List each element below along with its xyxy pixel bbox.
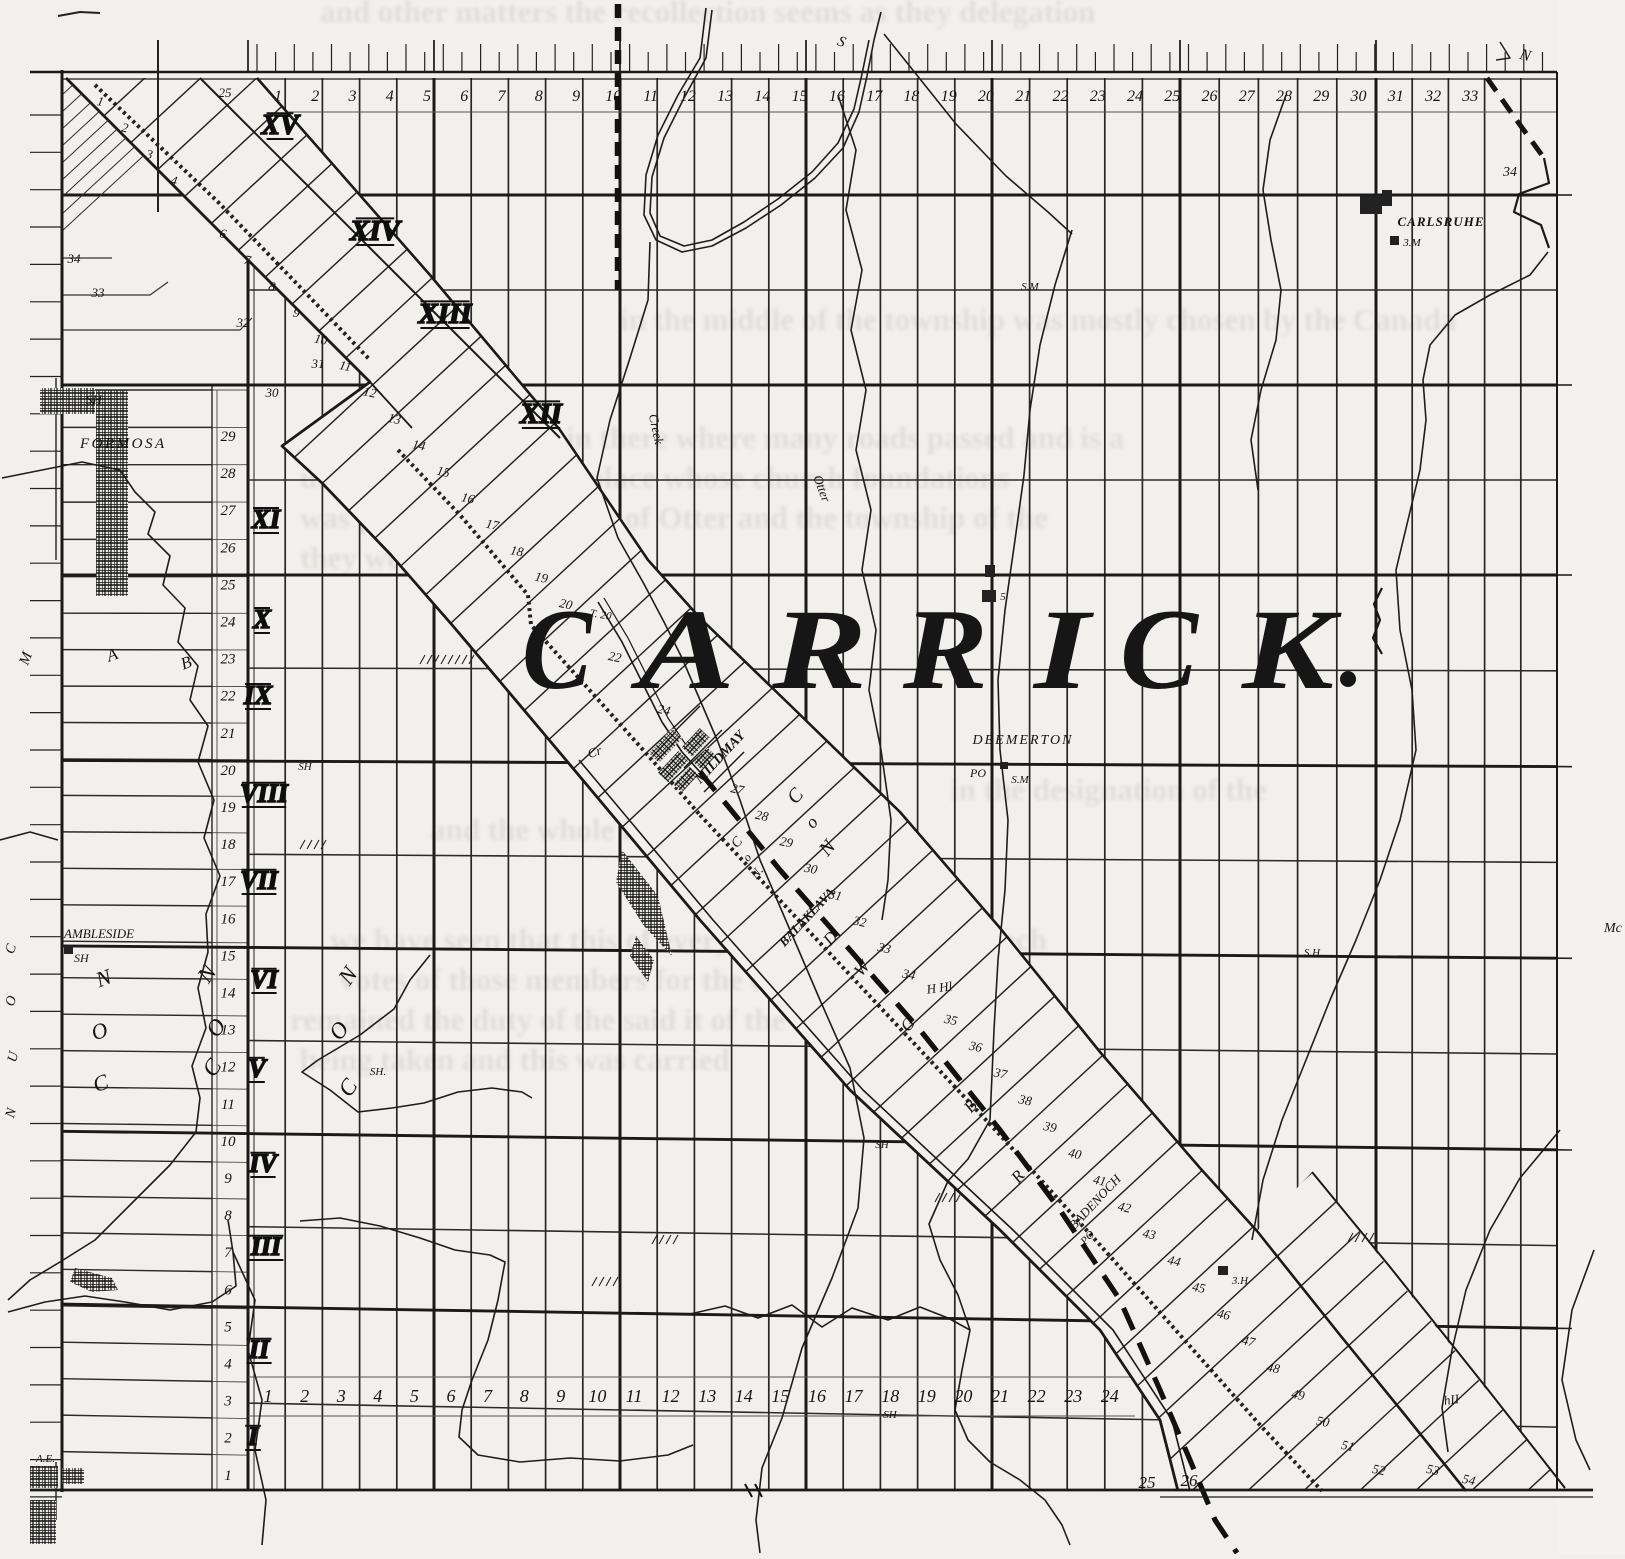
svg-text:7: 7: [483, 1386, 493, 1406]
svg-text:22: 22: [1028, 1386, 1046, 1406]
svg-text:34: 34: [67, 251, 82, 266]
svg-text:14: 14: [221, 986, 237, 1002]
svg-text:20: 20: [978, 88, 994, 105]
svg-text:14: 14: [754, 88, 770, 105]
svg-text:XIII: XIII: [417, 298, 473, 330]
svg-text:13: 13: [717, 88, 733, 105]
svg-text:and other matters the recollec: and other matters the recollection seems…: [320, 0, 1095, 29]
svg-text:2: 2: [300, 1386, 309, 1406]
svg-text:S.M: S.M: [1011, 774, 1029, 786]
svg-text:17: 17: [866, 88, 883, 105]
svg-text:32: 32: [236, 315, 251, 330]
svg-text:3: 3: [336, 1386, 346, 1406]
svg-text:25: 25: [1164, 88, 1180, 105]
svg-text:3: 3: [348, 88, 357, 105]
svg-text:A.E.: A.E.: [35, 1453, 55, 1465]
svg-text:8: 8: [520, 1386, 529, 1406]
svg-text:16: 16: [221, 911, 237, 927]
svg-text:10: 10: [588, 1386, 606, 1406]
svg-text:31: 31: [1387, 88, 1404, 105]
svg-text:22: 22: [1053, 88, 1069, 105]
svg-text:25: 25: [221, 577, 237, 593]
svg-text:C: C: [1120, 586, 1199, 713]
svg-text:6: 6: [447, 1386, 456, 1406]
svg-text:CARLSRUHE: CARLSRUHE: [1397, 214, 1484, 229]
svg-text:19: 19: [941, 88, 957, 105]
svg-text:19: 19: [918, 1386, 936, 1406]
svg-text:21: 21: [1015, 88, 1031, 105]
svg-text:30: 30: [1350, 88, 1367, 105]
svg-text:29: 29: [1313, 88, 1329, 105]
svg-text:AMBLESIDE: AMBLESIDE: [63, 926, 134, 941]
svg-text:20: 20: [221, 763, 237, 779]
svg-text:11: 11: [221, 1097, 235, 1113]
svg-text:C: C: [522, 586, 593, 713]
svg-text:SH: SH: [875, 1139, 890, 1151]
svg-text:XIV: XIV: [349, 215, 403, 247]
svg-text:4: 4: [386, 88, 394, 105]
svg-text:9: 9: [572, 88, 580, 105]
svg-text:FORMOSA: FORMOSA: [79, 436, 167, 452]
svg-text:12: 12: [662, 1386, 680, 1406]
svg-text:A: A: [630, 586, 735, 713]
svg-text:9: 9: [556, 1386, 565, 1406]
svg-text:PO: PO: [969, 766, 986, 780]
svg-text:4: 4: [224, 1357, 232, 1373]
svg-text:29: 29: [221, 429, 237, 445]
svg-text:1: 1: [274, 88, 282, 105]
svg-text:30: 30: [265, 385, 280, 400]
svg-text:24: 24: [1127, 88, 1143, 105]
svg-text:3: 3: [223, 1394, 232, 1410]
svg-text:22: 22: [221, 689, 237, 705]
svg-text:4: 4: [373, 1386, 382, 1406]
svg-text:18: 18: [903, 88, 919, 105]
svg-text:5: 5: [224, 1319, 232, 1335]
svg-text:XV: XV: [260, 110, 301, 141]
svg-text:33: 33: [91, 285, 106, 300]
svg-text:S.M: S.M: [1021, 281, 1039, 293]
svg-text:1: 1: [264, 1386, 273, 1406]
svg-text:15: 15: [221, 948, 237, 964]
svg-text:Mc: Mc: [1603, 921, 1623, 936]
svg-text:K: K: [1241, 586, 1343, 713]
svg-text:23: 23: [1090, 88, 1106, 105]
svg-text:31: 31: [311, 356, 325, 371]
svg-text:SH: SH: [74, 951, 90, 965]
svg-text:3.H: 3.H: [1231, 1275, 1249, 1287]
svg-text:R: R: [771, 586, 867, 713]
svg-text:15: 15: [792, 88, 808, 105]
svg-text:18: 18: [881, 1386, 899, 1406]
svg-text:11: 11: [643, 88, 658, 105]
svg-text:R: R: [902, 586, 988, 713]
svg-text:17: 17: [845, 1386, 864, 1406]
svg-text:16: 16: [808, 1386, 826, 1406]
svg-text:2: 2: [311, 88, 319, 105]
svg-text:7: 7: [498, 88, 507, 105]
svg-text:5: 5: [410, 1386, 419, 1406]
svg-text:5: 5: [423, 88, 431, 105]
svg-text:33: 33: [1461, 88, 1478, 105]
svg-text:in the middle of the township: in the middle of the township was mostly…: [620, 302, 1457, 337]
svg-text:24: 24: [221, 615, 237, 631]
svg-text:6: 6: [460, 88, 468, 105]
svg-text:SH: SH: [86, 392, 103, 407]
svg-text:I: I: [1031, 586, 1095, 713]
svg-text:26: 26: [1202, 88, 1218, 105]
svg-text:9: 9: [224, 1171, 232, 1187]
svg-text:5: 5: [1000, 591, 1006, 603]
svg-text:DEEMERTON: DEEMERTON: [972, 733, 1074, 748]
svg-text:11: 11: [626, 1386, 643, 1406]
svg-text:10: 10: [605, 88, 621, 105]
svg-text:SH.: SH.: [370, 1066, 386, 1078]
svg-text:1: 1: [224, 1468, 232, 1484]
svg-text:21: 21: [221, 726, 236, 742]
svg-text:being taken and this was carri: being taken and this was carried: [300, 1042, 730, 1077]
svg-text:2: 2: [224, 1431, 232, 1447]
svg-text:34: 34: [1502, 165, 1517, 180]
svg-text:21: 21: [991, 1386, 1009, 1406]
svg-text:26: 26: [221, 540, 237, 556]
svg-text:hII: hII: [1443, 1391, 1461, 1408]
svg-text:16: 16: [829, 88, 845, 105]
svg-text:SH: SH: [298, 761, 313, 773]
svg-text:27: 27: [1239, 88, 1256, 105]
svg-text:3.M: 3.M: [1402, 237, 1421, 249]
svg-text:13: 13: [698, 1386, 716, 1406]
svg-text:18: 18: [221, 837, 237, 853]
svg-text:28: 28: [221, 466, 237, 482]
svg-text:24: 24: [1101, 1386, 1119, 1406]
svg-text:10: 10: [221, 1134, 237, 1150]
svg-text:23: 23: [1064, 1386, 1082, 1406]
svg-text:19: 19: [221, 800, 237, 816]
svg-text:27: 27: [221, 503, 238, 519]
svg-text:25: 25: [1139, 1473, 1156, 1492]
svg-text:XII: XII: [519, 398, 564, 430]
svg-text:23: 23: [221, 652, 236, 668]
svg-text:14: 14: [735, 1386, 753, 1406]
svg-text:32: 32: [1424, 88, 1441, 105]
svg-text:S.H: S.H: [1304, 947, 1321, 959]
svg-text:8: 8: [535, 88, 543, 105]
svg-text:SH: SH: [883, 1409, 898, 1421]
svg-text:25: 25: [219, 85, 233, 100]
svg-text:26: 26: [1181, 1471, 1199, 1490]
svg-text:17: 17: [221, 874, 238, 890]
